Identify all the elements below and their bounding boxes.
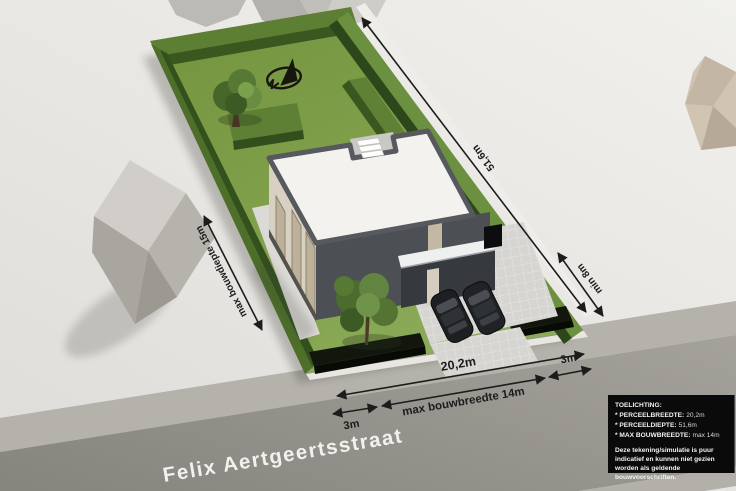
legend-disclaimer: Deze tekening/simulatie is puur indicati… (615, 446, 727, 483)
legend-item: * MAX BOUWBREEDTE:max 14m (615, 431, 727, 441)
legend-item: * PERCEELBREEDTE:20,2m (615, 411, 727, 421)
legend-box: TOELICHTING: * PERCEELBREEDTE:20,2m * PE… (608, 395, 735, 473)
utility-box (484, 224, 502, 249)
architectural-site-render: Felix Aertgeertsstraat (0, 0, 736, 491)
legend-item: * PERCEELDIEPTE:51,6m (615, 421, 727, 431)
legend-title: TOELICHTING: (615, 401, 727, 411)
